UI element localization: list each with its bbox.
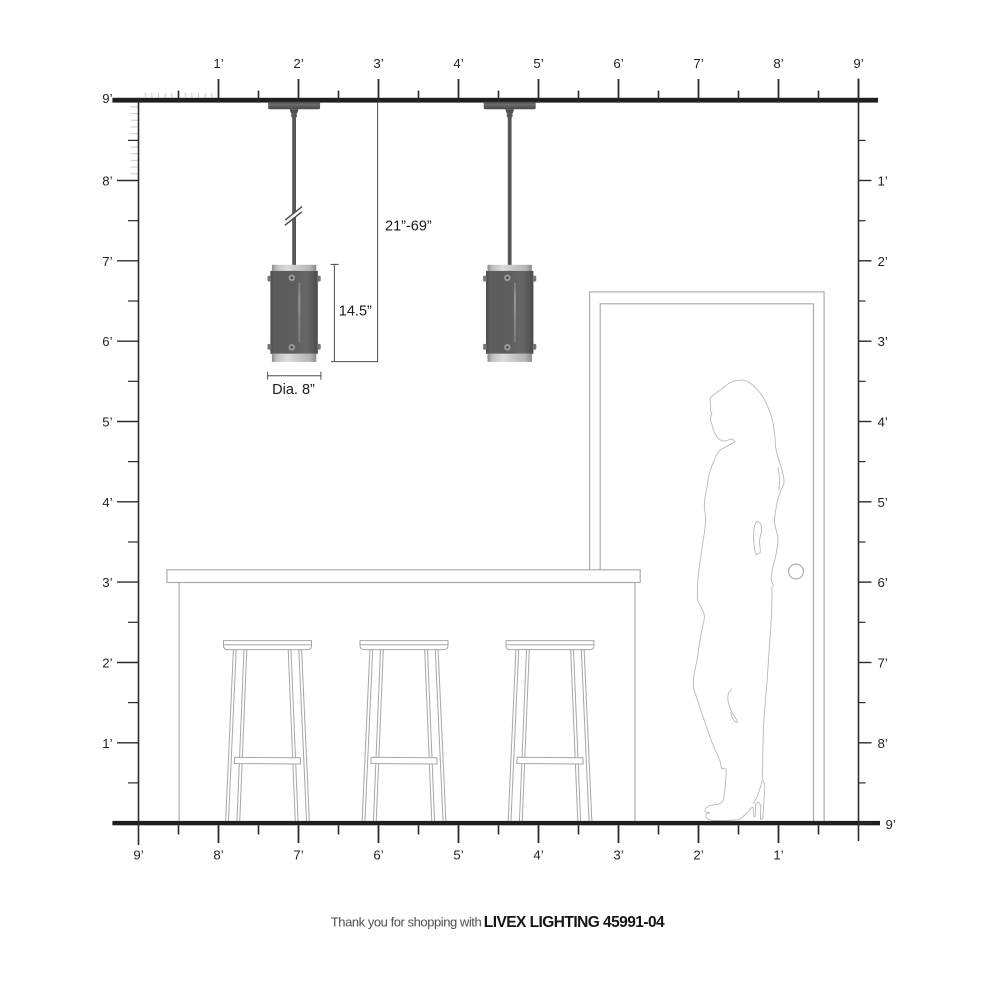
svg-text:9’: 9’ [853,56,863,71]
svg-text:2’: 2’ [293,56,303,71]
svg-text:8’: 8’ [773,56,783,71]
svg-text:9’: 9’ [886,817,896,832]
svg-text:1’: 1’ [213,56,223,71]
svg-text:6’: 6’ [102,334,112,349]
svg-text:4’: 4’ [453,56,463,71]
svg-text:9’: 9’ [102,91,112,106]
svg-text:1’: 1’ [878,174,888,189]
svg-text:8’: 8’ [878,736,888,751]
svg-text:21”-69”: 21”-69” [385,219,432,235]
svg-text:5’: 5’ [453,848,463,863]
svg-text:Thank you for shopping with: Thank you for shopping with [331,915,482,930]
svg-text:8’: 8’ [213,848,223,863]
svg-text:6’: 6’ [878,575,888,590]
svg-text:2’: 2’ [693,848,703,863]
svg-text:3’: 3’ [878,334,888,349]
svg-text:3’: 3’ [102,575,112,590]
svg-text:3’: 3’ [613,848,623,863]
svg-text:5’: 5’ [878,495,888,510]
svg-text:7’: 7’ [102,254,112,269]
svg-text:4’: 4’ [878,415,888,430]
svg-text:6’: 6’ [613,56,623,71]
svg-text:7’: 7’ [293,848,303,863]
svg-text:14.5”: 14.5” [339,304,372,320]
svg-text:1’: 1’ [102,736,112,751]
svg-text:4’: 4’ [533,848,543,863]
svg-text:5’: 5’ [533,56,543,71]
svg-text:6’: 6’ [373,848,383,863]
svg-text:8’: 8’ [102,174,112,189]
svg-text:3’: 3’ [373,56,383,71]
svg-text:5’: 5’ [102,415,112,430]
svg-text:LIVEX LIGHTING 45991-04: LIVEX LIGHTING 45991-04 [484,914,665,931]
svg-text:7’: 7’ [693,56,703,71]
svg-text:Dia. 8”: Dia. 8” [272,382,315,398]
svg-text:4’: 4’ [102,495,112,510]
svg-text:2’: 2’ [102,656,112,671]
svg-text:7’: 7’ [878,656,888,671]
svg-text:2’: 2’ [878,254,888,269]
svg-text:9’: 9’ [133,848,143,863]
svg-text:1’: 1’ [773,848,783,863]
